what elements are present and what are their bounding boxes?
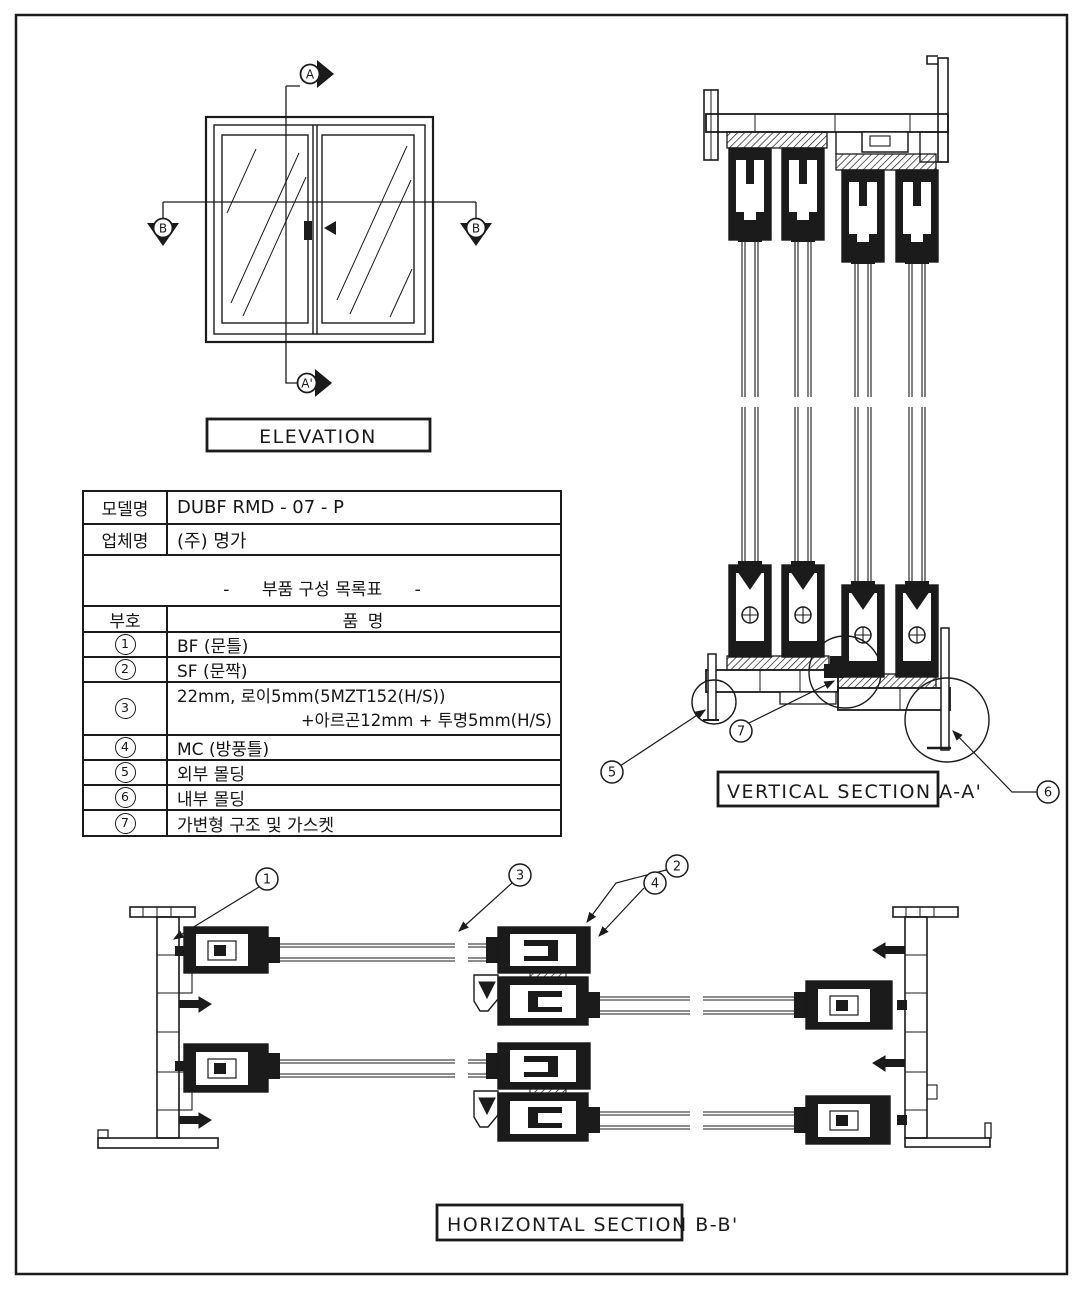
part-number: 6 bbox=[115, 787, 136, 808]
part-number: 1 bbox=[115, 634, 136, 655]
marker-letter: A bbox=[306, 68, 315, 82]
table-row: 5 외부 몰딩 bbox=[84, 759, 560, 784]
model-value: DUBF RMD - 07 - P bbox=[168, 497, 560, 518]
elevation-drawing bbox=[163, 86, 476, 383]
header-symbol: 부호 bbox=[84, 607, 168, 631]
horizontal-section-label: HORIZONTAL SECTION B-B' bbox=[437, 1205, 739, 1240]
exterior-molding bbox=[708, 654, 716, 720]
table-row-title: - 부품 구성 목록표 - bbox=[84, 554, 560, 605]
callout-number: 3 bbox=[516, 869, 524, 884]
table-row-vendor: 업체명 (주) 명가 bbox=[84, 523, 560, 554]
part-number: 5 bbox=[115, 762, 136, 783]
sash-profile bbox=[842, 170, 884, 677]
vertical-section-drawing bbox=[692, 56, 989, 762]
part-name: MC (방풍틀) bbox=[168, 735, 560, 760]
section-marker-b-left: B bbox=[147, 219, 179, 247]
marker-letter: A' bbox=[301, 377, 313, 391]
header-name: 품 명 bbox=[168, 607, 560, 632]
sash-profile bbox=[184, 1044, 268, 1092]
model-label: 모델명 bbox=[84, 492, 168, 523]
callout-number: 6 bbox=[1044, 786, 1052, 801]
callout-number: 7 bbox=[737, 725, 745, 740]
part-name: 가변형 구조 및 가스켓 bbox=[168, 811, 560, 836]
callout-2: 2 bbox=[587, 855, 688, 922]
sash-profile bbox=[896, 170, 938, 677]
horizontal-section-drawing bbox=[98, 907, 991, 1148]
table-row: 6 내부 몰딩 bbox=[84, 784, 560, 809]
part-name: 내부 몰딩 bbox=[168, 785, 560, 810]
window-handle bbox=[304, 221, 312, 240]
table-header-row: 부호 품 명 bbox=[84, 605, 560, 631]
table-row: 3 22mm, 로이5mm(5MZT152(H/S)) +아르곤12mm + 투… bbox=[84, 681, 560, 734]
vendor-label: 업체명 bbox=[84, 525, 168, 554]
table-row: 4 MC (방풍틀) bbox=[84, 734, 560, 759]
elevation-label-text: ELEVATION bbox=[259, 426, 377, 448]
callout-number: 4 bbox=[651, 877, 659, 892]
vertical-section-label-text: VERTICAL SECTION A-A' bbox=[727, 781, 982, 803]
callout-4: 4 bbox=[599, 872, 666, 936]
interior-molding bbox=[941, 628, 949, 750]
table-row-model: 모델명 DUBF RMD - 07 - P bbox=[84, 492, 560, 523]
callout-number: 2 bbox=[673, 860, 681, 875]
sash-profile bbox=[806, 1096, 890, 1144]
drawing-sheet: A A' B B ELEVATION bbox=[0, 0, 1083, 1290]
horizontal-section-label-text: HORIZONTAL SECTION B-B' bbox=[447, 1214, 739, 1236]
sash-profile bbox=[782, 148, 824, 657]
slide-direction-arrow bbox=[324, 221, 336, 235]
part-name: 외부 몰딩 bbox=[168, 760, 560, 785]
part-name: SF (문짝) bbox=[168, 657, 560, 682]
marker-letter: B bbox=[159, 222, 167, 236]
part-number: 3 bbox=[115, 698, 136, 719]
sash-profile bbox=[806, 981, 892, 1029]
part-name: 22mm, 로이5mm(5MZT152(H/S)) bbox=[177, 685, 560, 709]
callout-7: 7 bbox=[730, 681, 834, 742]
table-row: 1 BF (문틀) bbox=[84, 631, 560, 656]
section-marker-a-top: A bbox=[301, 60, 335, 88]
section-marker-a-bottom: A' bbox=[298, 369, 333, 397]
callout-number: 1 bbox=[263, 873, 271, 888]
parts-list-title: - 부품 구성 목록표 - bbox=[223, 575, 420, 600]
elevation-label: ELEVATION bbox=[207, 419, 430, 451]
part-number: 7 bbox=[115, 813, 136, 834]
sash-profile bbox=[729, 148, 771, 657]
vertical-section-label: VERTICAL SECTION A-A' bbox=[718, 772, 982, 806]
sash-profile bbox=[184, 927, 268, 973]
table-row: 7 가변형 구조 및 가스켓 bbox=[84, 809, 560, 835]
callout-5: 5 bbox=[601, 710, 705, 783]
parts-table: 모델명 DUBF RMD - 07 - P 업체명 (주) 명가 - 부품 구성… bbox=[82, 490, 562, 837]
part-number: 4 bbox=[115, 737, 136, 758]
vendor-value: (주) 명가 bbox=[168, 527, 560, 553]
callout-number: 5 bbox=[608, 766, 616, 781]
callout-3: 3 bbox=[459, 864, 531, 931]
section-marker-b-right: B bbox=[460, 219, 492, 247]
marker-letter: B bbox=[472, 222, 480, 236]
part-name-line2: +아르곤12mm + 투명5mm(H/S) bbox=[177, 709, 560, 733]
table-row: 2 SF (문짝) bbox=[84, 656, 560, 681]
part-number: 2 bbox=[115, 659, 136, 680]
gasket bbox=[824, 664, 844, 678]
part-name: BF (문틀) bbox=[168, 632, 560, 657]
